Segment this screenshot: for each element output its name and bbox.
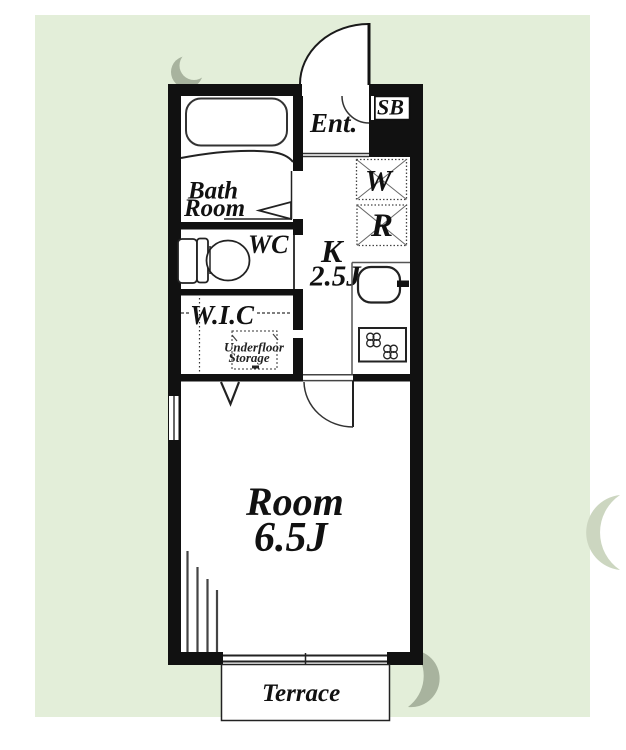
svg-text:R: R — [370, 208, 393, 244]
svg-text:2.5J: 2.5J — [309, 261, 362, 293]
svg-text:SB: SB — [377, 95, 404, 120]
svg-text:WC: WC — [248, 230, 289, 259]
svg-text:Storage: Storage — [229, 350, 270, 365]
svg-text:W: W — [365, 165, 394, 198]
svg-text:Terrace: Terrace — [262, 680, 340, 707]
svg-text:6.5J: 6.5J — [254, 515, 330, 561]
svg-text:Ent.: Ent. — [309, 108, 357, 138]
svg-text:Room: Room — [183, 195, 245, 222]
